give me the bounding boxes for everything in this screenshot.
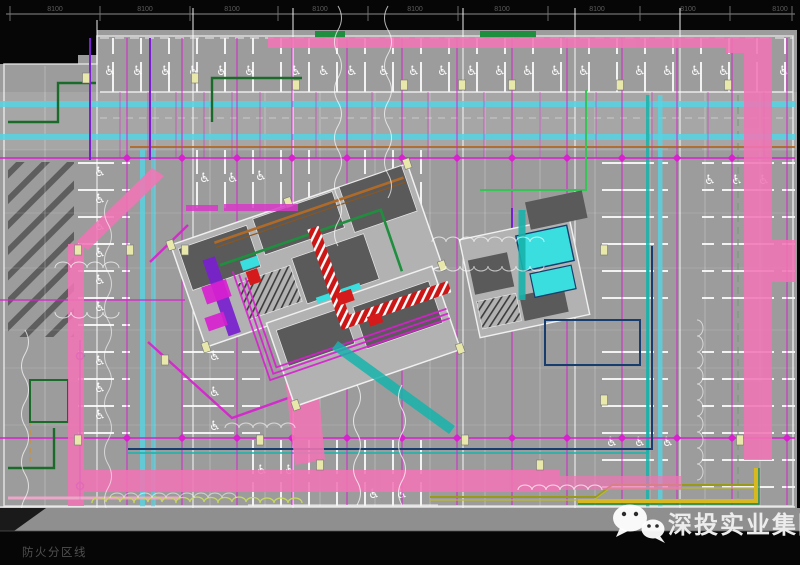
cad-plan-screenshot: ♿ 8100 8100 8100 8100 [0, 0, 800, 565]
dim-label: 8100 [494, 6, 510, 13]
dim-label: 8100 [312, 6, 328, 13]
dim-label: 8100 [137, 6, 153, 13]
pink-duct-bottom [84, 470, 560, 492]
dim-label: 8100 [589, 6, 605, 13]
plan-annotations [186, 204, 298, 211]
dim-label: 8100 [680, 6, 696, 13]
dim-label: 8100 [224, 6, 240, 13]
cyan-band-2 [0, 134, 795, 140]
pink-duct-right [744, 42, 772, 460]
fire-zone-label: 防火分区线 [22, 545, 87, 559]
dim-label: 8100 [772, 6, 788, 13]
cyan-band-1 [0, 101, 795, 107]
pink-duct-top [268, 37, 740, 48]
diagonal-stalls [8, 162, 74, 337]
dim-label: 8100 [47, 6, 63, 13]
cad-drawing-canvas: ♿ 8100 8100 8100 8100 [0, 0, 800, 565]
dim-label: 8100 [407, 6, 423, 13]
watermark-text: 深投实业集团 [668, 511, 800, 539]
